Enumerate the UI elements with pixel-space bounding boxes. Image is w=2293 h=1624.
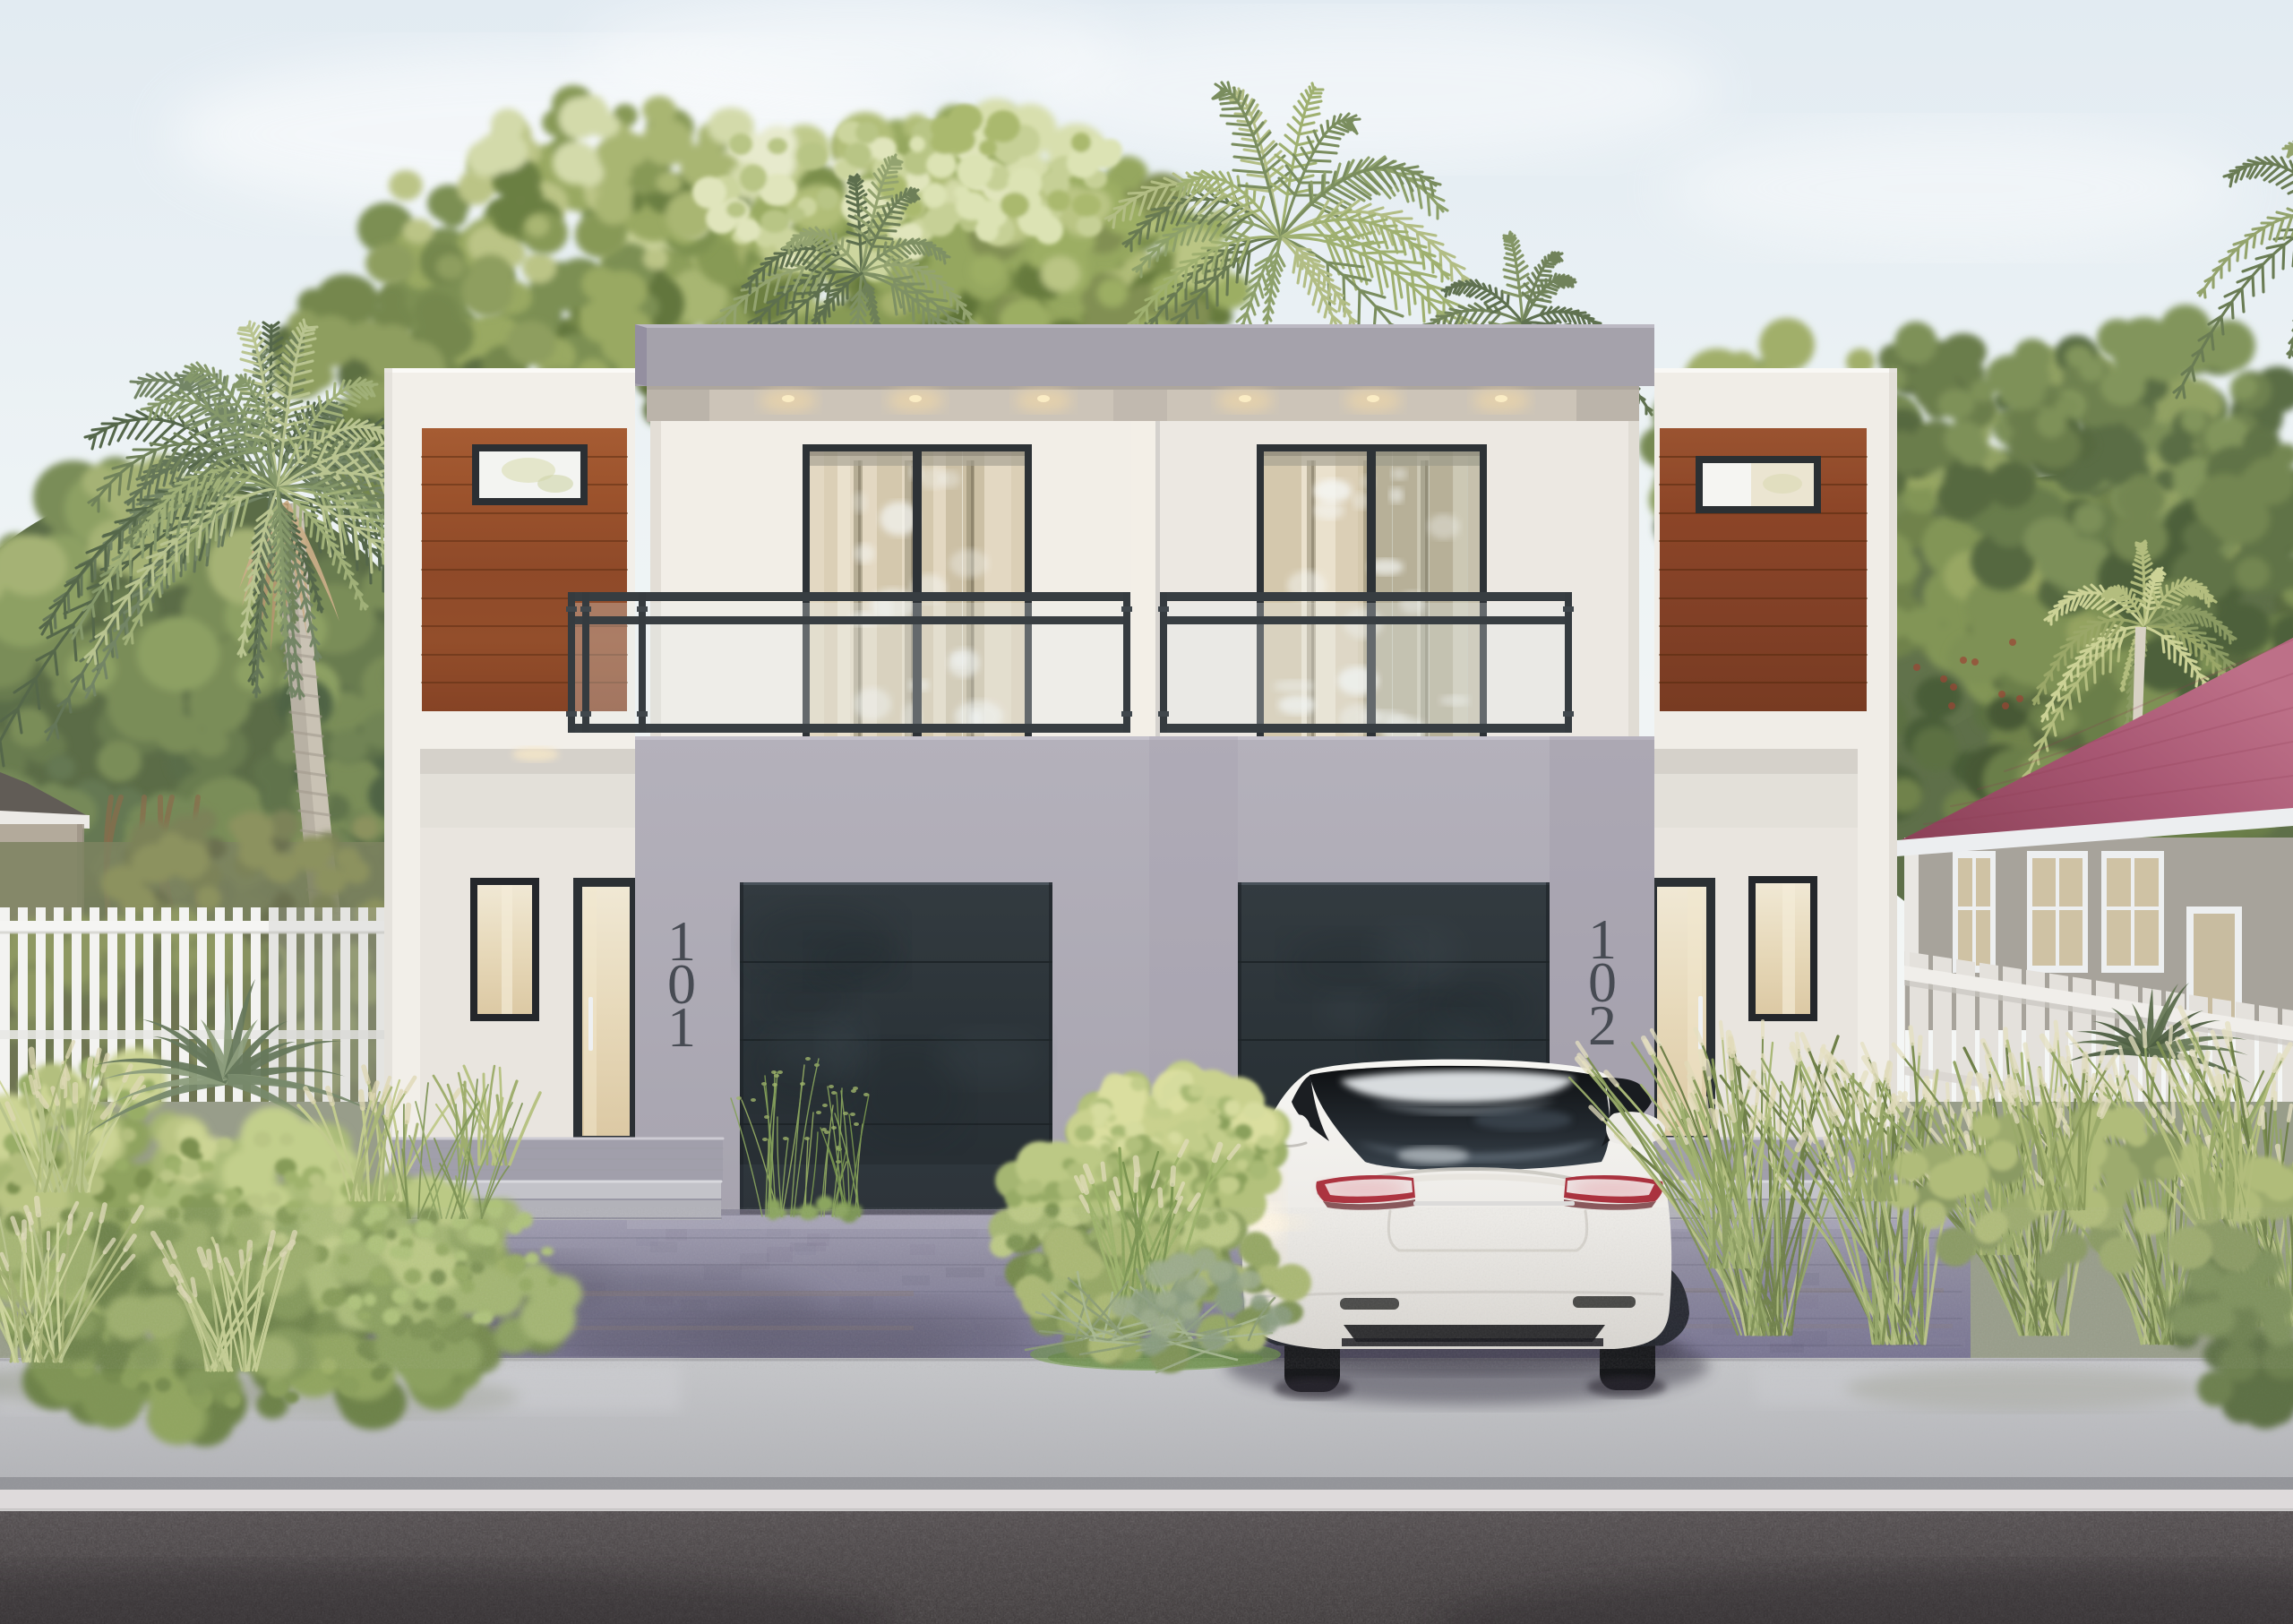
svg-text:1: 1 <box>667 995 696 1059</box>
svg-text:2: 2 <box>1588 993 1617 1057</box>
